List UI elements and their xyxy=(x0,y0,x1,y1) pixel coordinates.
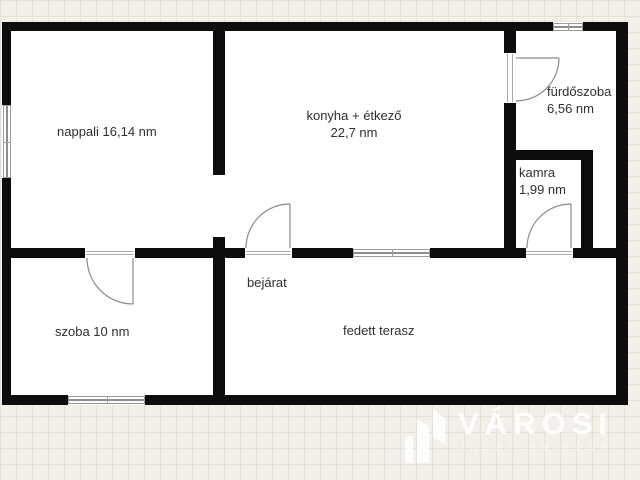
room-label-furdoszoba-name: fürdőszoba xyxy=(547,83,611,100)
room-label-furdoszoba-area: 6,56 nm xyxy=(547,100,611,117)
room-label-furdoszoba: fürdőszoba 6,56 nm xyxy=(547,83,611,117)
varosi-building-logo-icon xyxy=(405,409,445,463)
room-label-konyha-name: konyha + étkező xyxy=(301,107,407,124)
room-label-konyha: konyha + étkező 22,7 nm xyxy=(301,107,407,141)
room-label-kamra-name: kamra xyxy=(519,164,566,181)
room-label-bejarat: bejárat xyxy=(247,274,287,291)
door-arc-szoba xyxy=(87,258,133,304)
watermark-brand: VÁROSI xyxy=(458,406,613,442)
room-label-nappali: nappali 16,14 nm xyxy=(57,123,157,140)
room-label-kamra: kamra 1,99 nm xyxy=(519,164,566,198)
room-label-konyha-area: 22,7 nm xyxy=(301,124,407,141)
door-arc-kamra xyxy=(527,204,571,248)
room-label-kamra-area: 1,99 nm xyxy=(519,181,566,198)
door-arc-bejarat xyxy=(246,204,290,248)
floor-plan-canvas: nappali 16,14 nm konyha + étkező 22,7 nm… xyxy=(0,0,640,480)
watermark-tagline: INGATLANIRODA xyxy=(462,442,613,452)
room-label-fedett-terasz: fedett terasz xyxy=(343,322,415,339)
room-label-szoba: szoba 10 nm xyxy=(55,323,129,340)
